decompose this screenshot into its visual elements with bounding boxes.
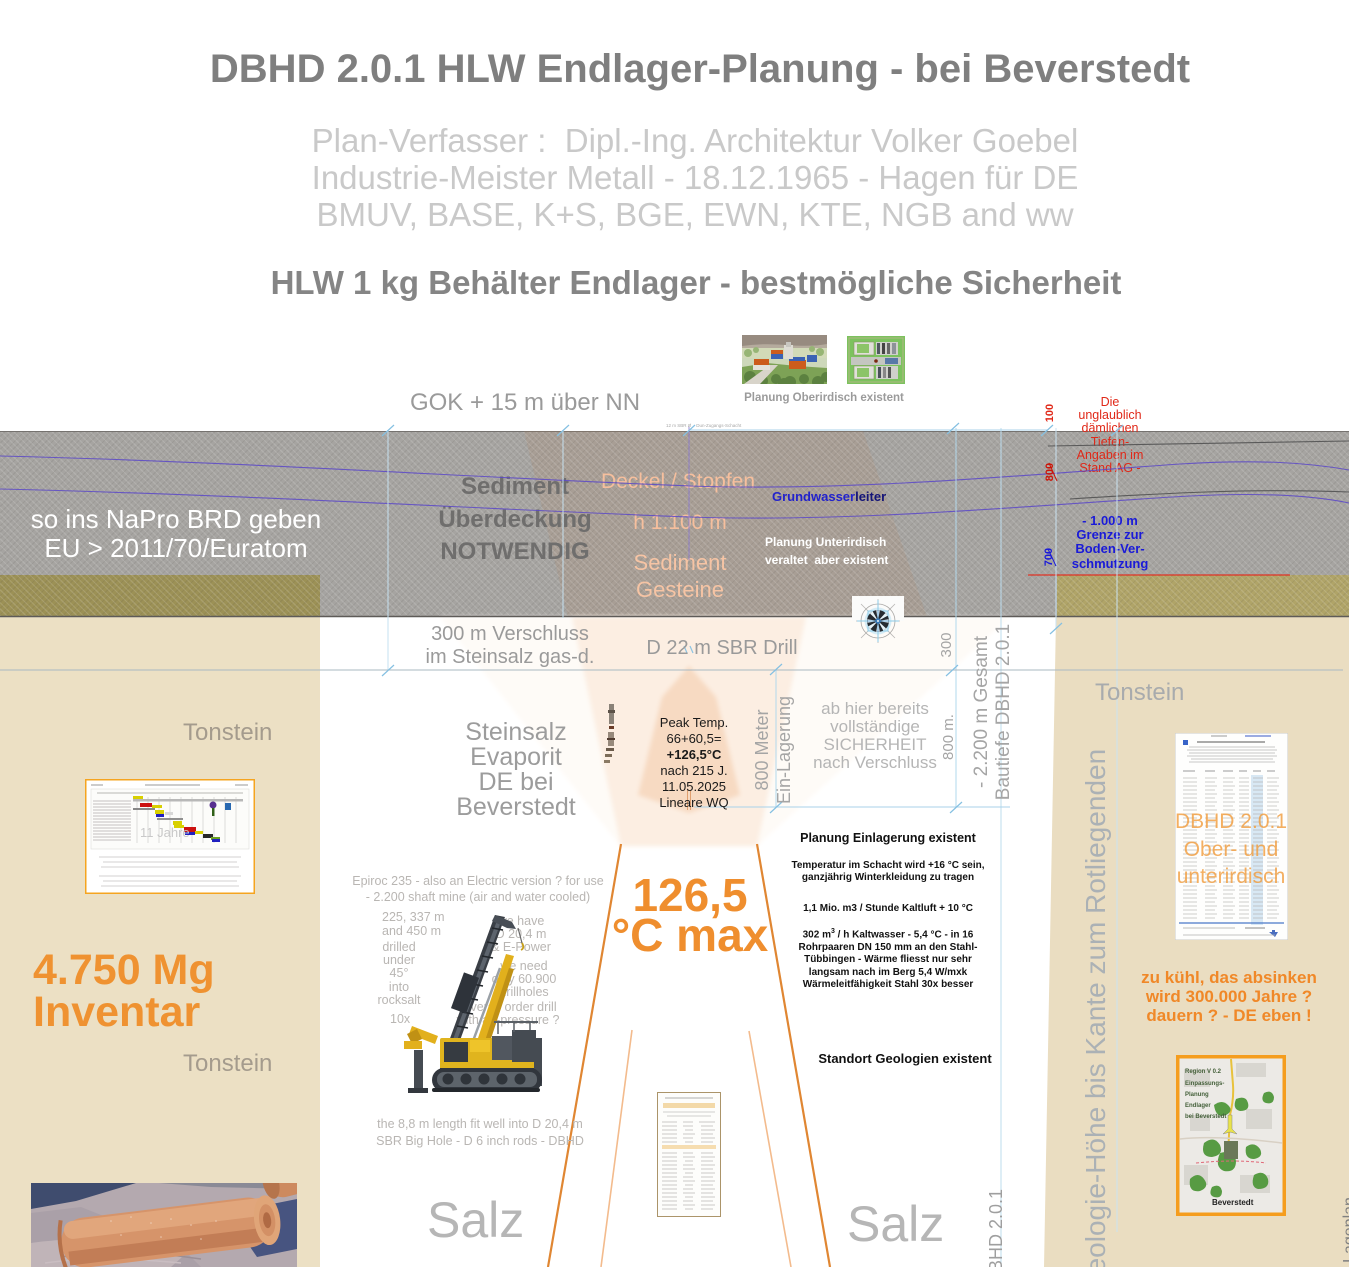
svg-text:300: 300 — [938, 632, 955, 657]
svg-text:Bautiefe DBHD 2.0.1: Bautiefe DBHD 2.0.1 — [993, 624, 1014, 800]
svg-text:Endlager: Endlager — [1185, 1103, 1211, 1109]
svg-text:11 Jahre: 11 Jahre — [140, 825, 190, 840]
svg-text:Einpassungs-: Einpassungs- — [1185, 1081, 1224, 1087]
svg-text:Region V 0.2: Region V 0.2 — [1185, 1069, 1222, 1075]
svg-text:Beverstedt: Beverstedt — [1212, 1198, 1254, 1207]
svg-text:Lageplan: Lageplan — [1341, 1197, 1349, 1263]
svg-text:DBHD 2.0.1: DBHD 2.0.1 — [986, 1189, 1006, 1267]
svg-text:bei Beverstedt: bei Beverstedt — [1185, 1114, 1226, 1120]
svg-text:100: 100 — [1044, 404, 1056, 422]
svg-text:Planung: Planung — [1185, 1092, 1209, 1098]
